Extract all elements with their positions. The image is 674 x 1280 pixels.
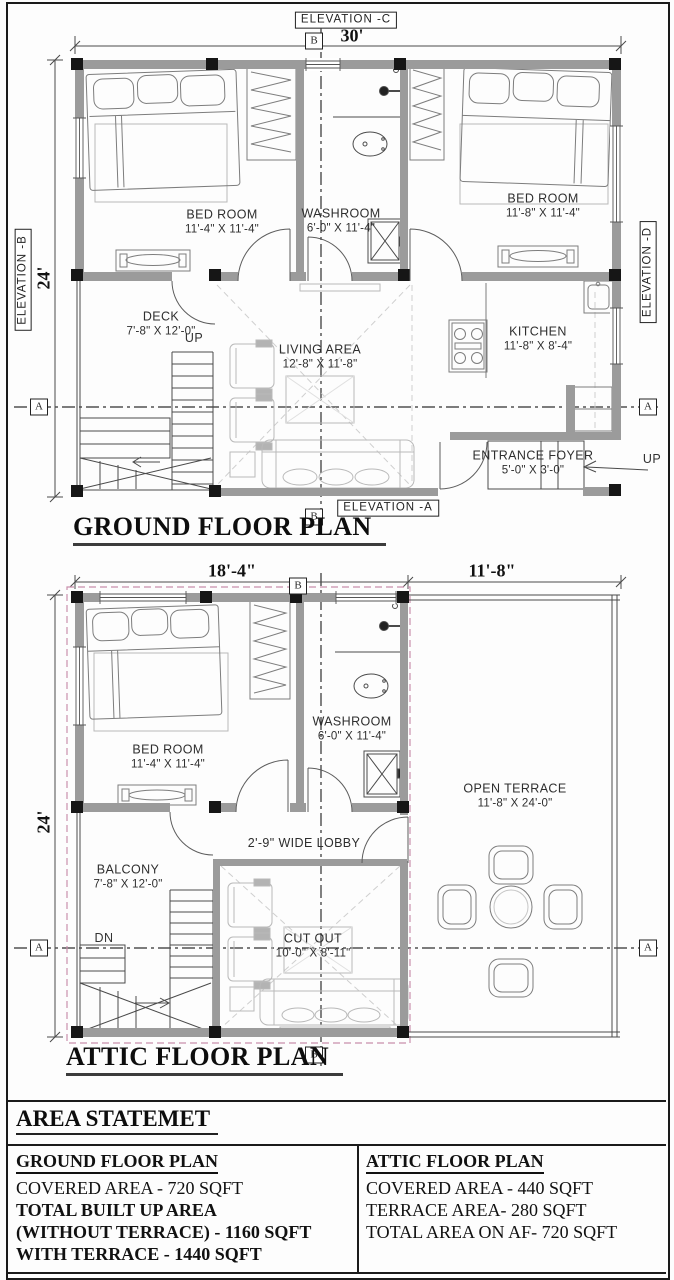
section-marker-b: B xyxy=(305,33,323,50)
room-label-attic-bedroom: BED ROOM 11'-4" X 11'-4" xyxy=(131,742,205,773)
room-label-bedroom1: BED ROOM 11'-4" X 11'-4" xyxy=(185,207,259,238)
section-marker-a: A xyxy=(639,940,657,957)
area-line: WITH TERRACE - 1440 SQFT xyxy=(16,1243,316,1265)
bed-icon xyxy=(86,605,222,720)
shower-icon xyxy=(364,751,404,797)
dining-set-icon xyxy=(438,846,582,997)
room-label-entrance-foyer: ENTRANCE FOYER 5'-0" X 3'-0" xyxy=(473,448,594,479)
attic-dim-right: 11'-8" xyxy=(469,559,516,582)
armchair-icon xyxy=(228,933,272,989)
windows xyxy=(73,591,396,725)
elevation-d-label: ELEVATION -D xyxy=(640,221,657,323)
elevation-b-label: ELEVATION -B xyxy=(15,229,32,331)
side-table-icon xyxy=(230,987,254,1011)
washroom-fixtures xyxy=(335,604,404,798)
divider-line xyxy=(8,1144,666,1146)
room-label-bedroom2: BED ROOM 11'-8" X 11'-4" xyxy=(506,191,580,222)
room-label-living: LIVING AREA 12'-8" X 11'-8" xyxy=(279,342,361,373)
bed-icon xyxy=(460,67,612,186)
up-label: UP xyxy=(643,451,661,467)
attic-height-dimension: 24' xyxy=(32,810,55,833)
window-icon xyxy=(610,308,623,364)
sofa-icon xyxy=(262,440,414,495)
wardrobe-icon xyxy=(410,64,444,160)
area-statement-attic-column: ATTIC FLOOR PLAN COVERED AREA - 440 SQFT… xyxy=(366,1150,662,1243)
section-marker-a: A xyxy=(30,940,48,957)
dresser-icon xyxy=(498,246,578,267)
window-icon xyxy=(73,647,86,725)
area-statement-heading: AREA STATEMET xyxy=(16,1106,218,1135)
dn-label: DN xyxy=(94,930,113,946)
room-label-lobby: 2'-9" WIDE LOBBY xyxy=(248,835,361,851)
section-lines xyxy=(14,573,662,1067)
toilet-icon xyxy=(353,132,387,156)
ground-floor-plan-title: GROUND FLOOR PLAN xyxy=(73,512,386,546)
window-icon xyxy=(306,58,340,71)
window-icon xyxy=(336,591,396,604)
column-divider xyxy=(357,1144,359,1272)
section-marker-a: A xyxy=(30,399,48,416)
window-icon xyxy=(610,126,623,222)
up-label: UP xyxy=(185,330,203,346)
dresser-icon xyxy=(116,250,190,271)
living-furniture xyxy=(230,284,414,495)
bed-icon xyxy=(86,69,240,190)
wardrobe-icon xyxy=(247,66,296,160)
column-title: ATTIC FLOOR PLAN xyxy=(366,1150,544,1174)
staircase-icon xyxy=(80,352,213,490)
armchair-icon xyxy=(230,394,274,450)
balcony-border xyxy=(77,812,80,1037)
floor-plan-sheet: ELEVATION -C B 30' ELEVATION -B 24' ELEV… xyxy=(0,0,674,1280)
section-marker-b: B xyxy=(289,578,307,595)
area-line: TERRACE AREA- 280 SQFT xyxy=(366,1199,662,1221)
area-statement-ground-column: GROUND FLOOR PLAN COVERED AREA - 720 SQF… xyxy=(16,1150,316,1265)
wardrobe-icon xyxy=(250,599,290,699)
area-line: COVERED AREA - 720 SQFT xyxy=(16,1177,316,1199)
roof-outline xyxy=(67,587,410,1043)
side-table-icon xyxy=(230,452,255,477)
room-label-balcony: BALCONY 7'-8" X 12'-0" xyxy=(93,862,162,893)
window-icon xyxy=(100,591,186,604)
armchair-icon xyxy=(230,340,274,396)
room-label-attic-washroom: WASHROOM 6'-0" X 11'-4" xyxy=(312,714,391,745)
divider-line xyxy=(8,1272,666,1274)
attic-dim-left: 18'-4" xyxy=(208,559,256,582)
stove-icon xyxy=(449,320,487,372)
kitchen-fixtures xyxy=(449,281,613,431)
dresser-icon xyxy=(118,785,196,805)
tv-unit-icon xyxy=(300,284,380,291)
attic-floor-drawing xyxy=(0,555,674,1085)
area-line: TOTAL BUILT UP AREA (WITHOUT TERRACE) - … xyxy=(16,1199,316,1243)
sink-icon xyxy=(584,281,613,313)
rug xyxy=(95,124,227,202)
section-marker-a: A xyxy=(639,399,657,416)
area-line: COVERED AREA - 440 SQFT xyxy=(366,1177,662,1199)
divider-line xyxy=(8,1100,666,1102)
cabinet-icon xyxy=(572,387,612,431)
column-title: GROUND FLOOR PLAN xyxy=(16,1150,218,1174)
armchair-icon xyxy=(228,879,272,935)
terrace-parapet xyxy=(408,595,620,1037)
area-line: TOTAL AREA ON AF- 720 SQFT xyxy=(366,1221,662,1243)
coffee-table-icon xyxy=(286,376,354,423)
room-label-washroom: WASHROOM 6'-0" X 11'-4" xyxy=(301,206,380,237)
room-label-kitchen: KITCHEN 11'-8" X 8'-4" xyxy=(504,324,572,355)
sofa-icon xyxy=(260,979,408,1031)
height-dimension: 24' xyxy=(32,266,55,289)
rug xyxy=(94,653,228,731)
staircase-icon xyxy=(80,890,213,1033)
toilet-icon xyxy=(354,674,388,698)
width-dimension: 30' xyxy=(340,24,363,47)
window-icon xyxy=(73,118,86,178)
attic-floor-plan-title: ATTIC FLOOR PLAN xyxy=(66,1042,343,1076)
room-label-open-terrace: OPEN TERRACE 11'-8" X 24'-0" xyxy=(463,781,566,812)
room-label-cutout: CUT OUT 10'-0" X 8'-11" xyxy=(276,931,351,962)
